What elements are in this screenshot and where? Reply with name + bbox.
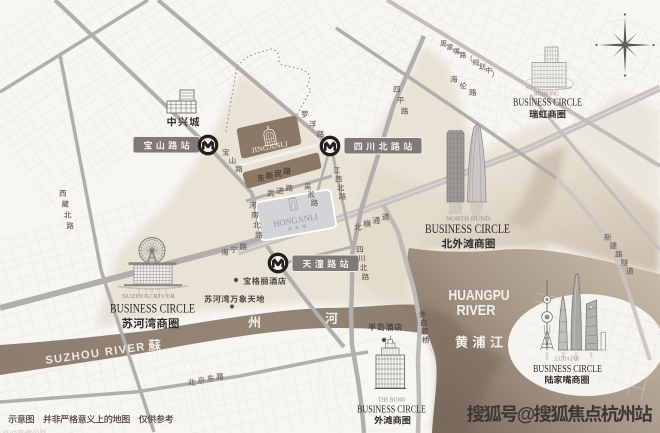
svg-text:BUSINESS CIRCLE: BUSINESS CIRCLE <box>357 404 426 415</box>
svg-text:SUZHOU RIVER: SUZHOU RIVER <box>122 293 176 300</box>
svg-text:LUJIAZUI: LUJIAZUI <box>555 357 579 363</box>
svg-text:BUSINESS CIRCLE: BUSINESS CIRCLE <box>110 302 195 316</box>
svg-text:BUSINESS CIRCLE: BUSINESS CIRCLE <box>513 98 582 109</box>
svg-text:@: @ <box>517 405 536 426</box>
svg-text:RIVER: RIVER <box>457 303 496 319</box>
svg-text:THE BUND: THE BUND <box>378 397 405 404</box>
svg-text:BUSINESS CIRCLE: BUSINESS CIRCLE <box>533 364 602 375</box>
svg-text:BUSINESS CIRCLE: BUSINESS CIRCLE <box>425 222 510 236</box>
svg-text:HUANGPU: HUANGPU <box>449 288 510 304</box>
